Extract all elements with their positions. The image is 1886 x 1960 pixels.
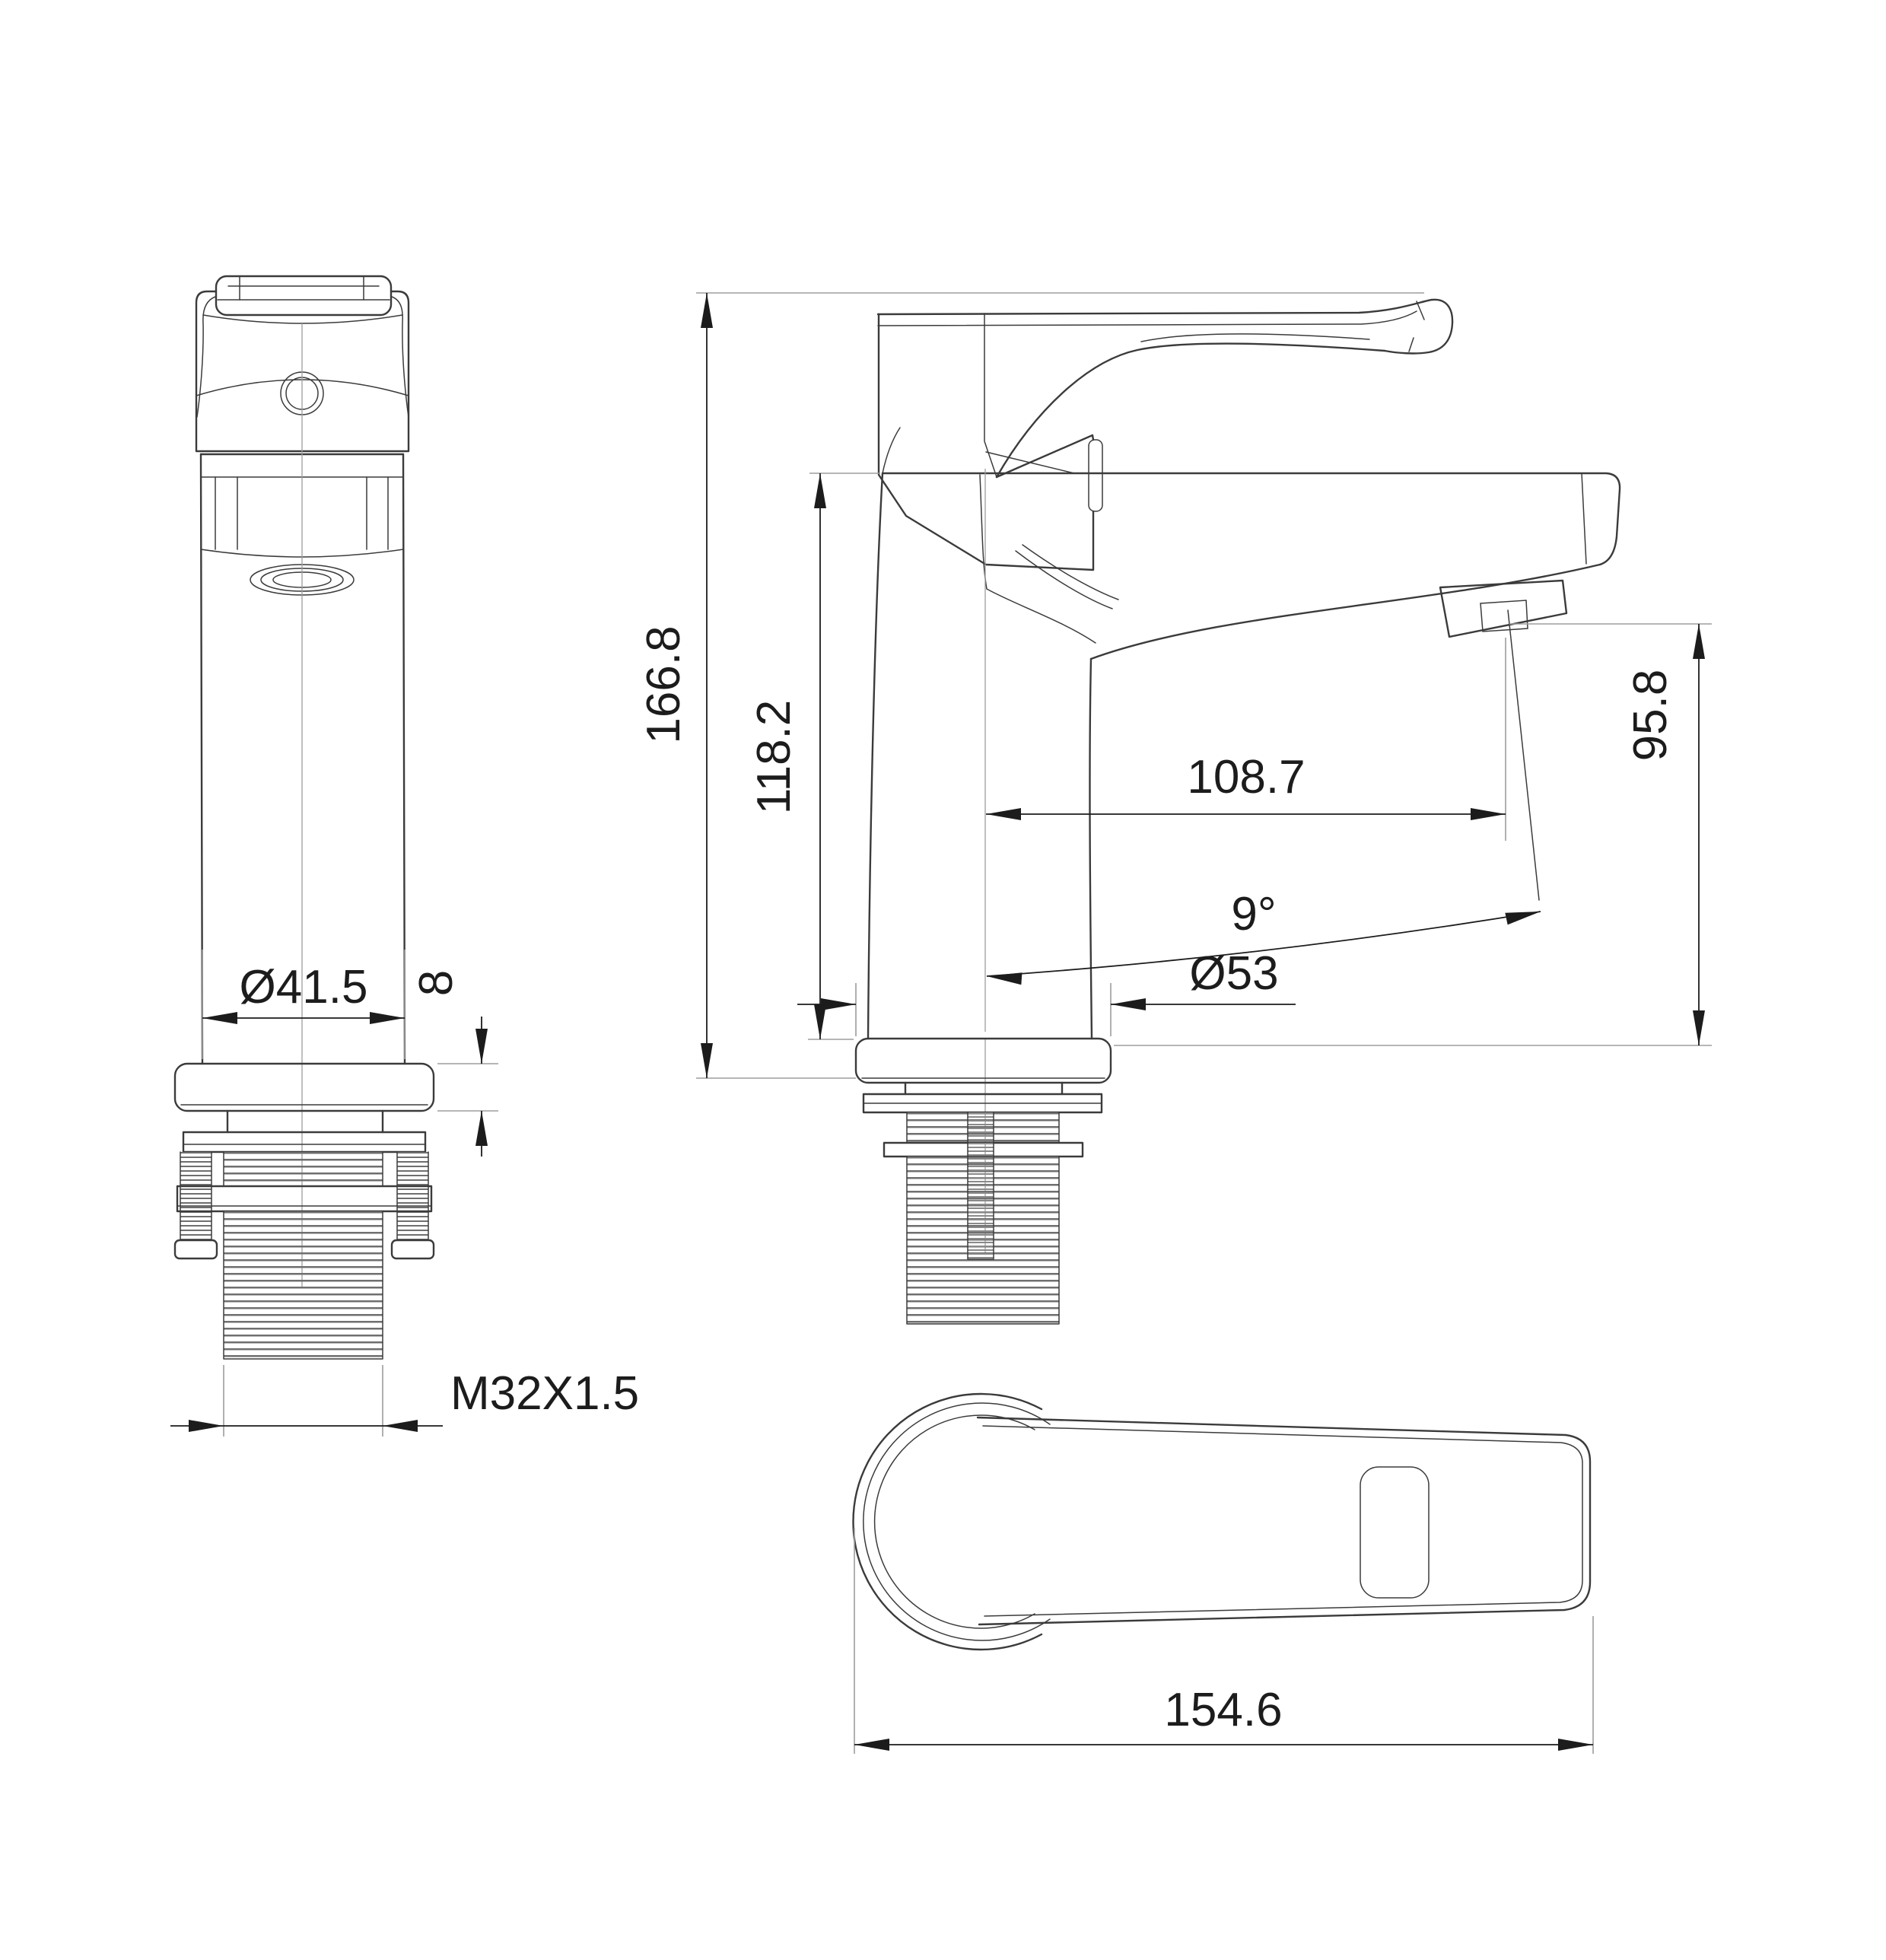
front-view — [175, 276, 434, 1359]
side-stem — [905, 1083, 1062, 1094]
top-lever-recess — [1360, 1467, 1429, 1598]
side-dimensions: 166.8 118.2 108.7 9° 95.8 Ø53 — [638, 293, 1712, 1078]
side-aerator-insert — [1480, 600, 1528, 632]
front-stud-edges — [180, 1152, 428, 1240]
dim-spout-angle-label: 9° — [1231, 888, 1276, 940]
front-housing-crease-left — [197, 297, 215, 417]
side-body-shoulder — [883, 428, 1074, 473]
front-washer — [183, 1132, 425, 1152]
faucet-technical-drawing: Ø41.5 8 M32X1.5 — [0, 0, 1886, 1960]
side-lever-underside-inner — [1141, 334, 1369, 342]
front-collar-curve — [203, 315, 402, 323]
drawing-sheet: Ø41.5 8 M32X1.5 — [0, 0, 1886, 1960]
side-body-curve2 — [1016, 545, 1118, 609]
front-base-flange — [175, 1064, 434, 1111]
side-water-angle-line — [1508, 610, 1539, 900]
front-locknut — [177, 1186, 431, 1211]
side-spout-top — [883, 473, 1620, 565]
side-spout-end-seam — [1582, 473, 1586, 564]
front-stud-right-head — [392, 1240, 434, 1258]
dim-overall-height-extlines — [696, 293, 1424, 1078]
dim-base-diameter-label: Ø53 — [1189, 947, 1278, 1000]
dim-outlet-height-arrow-top — [1693, 624, 1705, 659]
dim-spout-angle-arrow-left — [986, 970, 1022, 985]
top-lever-inner-outline — [983, 1426, 1582, 1616]
dim-spout-reach-label: 108.7 — [1187, 751, 1305, 803]
dim-overall-height-arrow-bottom — [701, 1043, 713, 1078]
front-lever-bar — [216, 276, 391, 315]
side-spout-underside — [1091, 565, 1600, 659]
dim-body-diameter-arrow-right — [370, 1012, 405, 1024]
dim-overall-height-label: 166.8 — [638, 625, 690, 743]
dim-base-diameter-arrow-right — [1111, 998, 1146, 1010]
dim-handle-length-arrow-left — [854, 1739, 889, 1751]
top-view — [854, 1394, 1590, 1650]
side-column — [868, 473, 1092, 1039]
side-pivot-cap — [1089, 440, 1102, 511]
side-body-curve1 — [980, 475, 1096, 643]
dim-outlet-height-arrow-bottom — [1693, 1010, 1705, 1045]
dim-handle-length-arrow-right — [1558, 1739, 1593, 1751]
dim-thread-spec-arrow-left — [189, 1420, 224, 1432]
dim-base-diameter-extlines — [856, 983, 1111, 1036]
side-lever-underside — [997, 344, 1385, 477]
side-aerator — [1440, 581, 1566, 637]
dim-body-diameter-arrow-left — [202, 1012, 237, 1024]
dim-outlet-height-label: 95.8 — [1624, 670, 1677, 762]
front-housing-crease-right — [392, 297, 409, 417]
dim-flange-height-arrow-top — [475, 1029, 488, 1064]
front-stem — [227, 1111, 383, 1132]
dim-flange-height-label: 8 — [410, 970, 463, 996]
dim-handle-length-label: 154.6 — [1164, 1684, 1282, 1736]
side-base-flange — [856, 1039, 1111, 1083]
side-handle-housing — [879, 314, 1093, 570]
top-knob-arc-mid — [863, 1403, 1050, 1640]
top-knob-arc-outer — [854, 1394, 1042, 1650]
dim-spout-reach-arrow-left — [986, 808, 1021, 820]
dim-body-diameter-label: Ø41.5 — [240, 961, 368, 1013]
dim-spout-reach-arrow-right — [1471, 808, 1506, 820]
side-lever-tip-seams — [1409, 301, 1424, 352]
top-dimensions: 154.6 — [854, 1528, 1593, 1754]
dim-body-height-label: 118.2 — [748, 700, 800, 815]
dim-thread-spec-label: M32X1.5 — [450, 1367, 639, 1420]
dim-flange-height-extlines — [437, 1064, 498, 1111]
top-knob-arc-inner — [875, 1415, 1035, 1628]
top-lever-outline — [978, 1417, 1590, 1624]
dim-spout-angle-arrow-right — [1505, 905, 1541, 924]
dim-body-height-arrow-top — [814, 473, 826, 508]
dim-thread-spec-arrow-right — [383, 1420, 418, 1432]
dim-flange-height-arrow-bottom — [475, 1111, 488, 1146]
dim-base-diameter-arrow-left — [821, 998, 856, 1010]
dim-overall-height-arrow-top — [701, 293, 713, 328]
front-stud-left-head — [175, 1240, 217, 1258]
front-lever-bar-seams — [240, 276, 364, 300]
